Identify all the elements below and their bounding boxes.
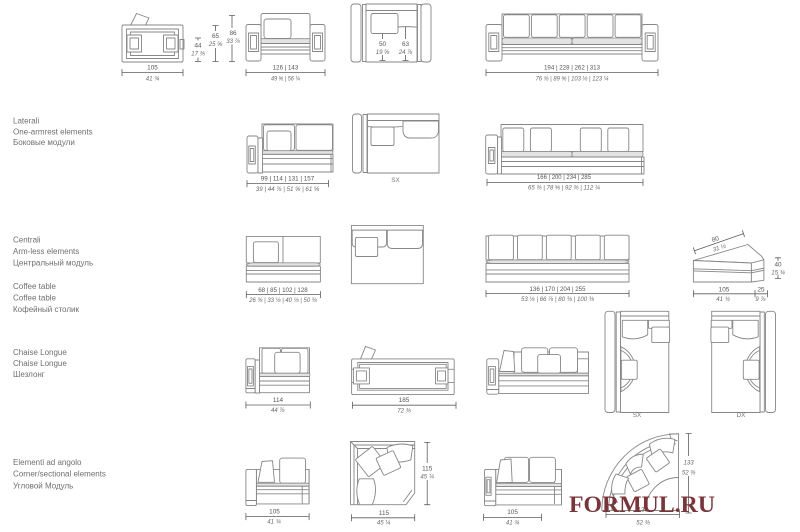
svg-text:114: 114 bbox=[273, 397, 284, 404]
svg-text:105: 105 bbox=[507, 509, 518, 516]
svg-text:Centrali: Centrali bbox=[13, 236, 41, 245]
svg-text:105: 105 bbox=[147, 65, 158, 72]
svg-text:Coffee table: Coffee table bbox=[13, 282, 57, 291]
svg-text:33 ⅞: 33 ⅞ bbox=[226, 38, 240, 45]
svg-text:76 ⅜ | 89 ⅝ | 103 ⅛ | 123 ¼: 76 ⅜ | 89 ⅝ | 103 ⅛ | 123 ¼ bbox=[536, 76, 609, 83]
svg-text:194 | 228 | 262 | 313: 194 | 228 | 262 | 313 bbox=[544, 65, 600, 72]
svg-text:25: 25 bbox=[757, 286, 765, 293]
svg-text:50: 50 bbox=[379, 41, 387, 48]
svg-text:63: 63 bbox=[402, 41, 410, 48]
svg-text:Laterali: Laterali bbox=[13, 117, 39, 126]
svg-text:115: 115 bbox=[379, 510, 390, 517]
svg-text:Elementi ad angolo: Elementi ad angolo bbox=[13, 458, 82, 467]
svg-text:Шезлонг: Шезлонг bbox=[13, 370, 45, 379]
svg-text:Corner/sectional elements: Corner/sectional elements bbox=[13, 470, 106, 479]
svg-text:41 ¾: 41 ¾ bbox=[146, 76, 160, 83]
svg-text:SX: SX bbox=[391, 177, 400, 184]
svg-text:52 ⅜: 52 ⅜ bbox=[636, 520, 650, 527]
svg-text:Кофейный столик: Кофейный столик bbox=[13, 305, 79, 314]
svg-text:Chaise Longue: Chaise Longue bbox=[13, 348, 67, 357]
svg-text:65: 65 bbox=[212, 33, 220, 40]
svg-text:Arm-less elements: Arm-less elements bbox=[13, 247, 79, 256]
svg-text:105: 105 bbox=[269, 508, 280, 515]
svg-text:41 ¾: 41 ¾ bbox=[267, 518, 281, 525]
svg-text:FORMUL.RU: FORMUL.RU bbox=[569, 492, 715, 517]
svg-text:105: 105 bbox=[719, 286, 730, 293]
svg-text:166 | 200 | 234 | 285: 166 | 200 | 234 | 285 bbox=[537, 174, 591, 181]
svg-text:45 ¼: 45 ¼ bbox=[377, 520, 391, 527]
svg-text:115: 115 bbox=[422, 466, 433, 473]
svg-text:Угловой Модуль: Угловой Модуль bbox=[13, 481, 73, 490]
svg-text:One-armrest elements: One-armrest elements bbox=[13, 127, 93, 136]
svg-text:Chaise Longue: Chaise Longue bbox=[13, 359, 67, 368]
svg-text:15 ¾: 15 ¾ bbox=[771, 269, 785, 276]
svg-text:53 ⅛ | 66 ⅞ | 80 ⅜ | 100 ⅜: 53 ⅛ | 66 ⅞ | 80 ⅜ | 100 ⅜ bbox=[521, 296, 595, 303]
svg-text:Coffee table: Coffee table bbox=[13, 294, 57, 303]
svg-text:45 ¼: 45 ¼ bbox=[420, 473, 434, 480]
svg-text:39 | 44 ⅞ | 51 ⅝ | 61 ⅝: 39 | 44 ⅞ | 51 ⅝ | 61 ⅝ bbox=[256, 186, 320, 193]
svg-text:72 ⅜: 72 ⅜ bbox=[397, 407, 411, 414]
svg-text:52 ⅜: 52 ⅜ bbox=[682, 470, 696, 477]
svg-text:86: 86 bbox=[229, 30, 237, 37]
svg-text:136 | 170 | 204 | 255: 136 | 170 | 204 | 255 bbox=[530, 286, 586, 293]
svg-text:68 | 85 | 102 | 128: 68 | 85 | 102 | 128 bbox=[258, 287, 308, 294]
svg-text:19 ⅝: 19 ⅝ bbox=[376, 49, 390, 56]
svg-text:65 ⅜ | 78 ⅝ | 92 ⅜ | 112 ¼: 65 ⅜ | 78 ⅝ | 92 ⅜ | 112 ¼ bbox=[528, 185, 600, 192]
svg-text:Боковые модули: Боковые модули bbox=[13, 138, 75, 147]
svg-text:24 ⅞: 24 ⅞ bbox=[398, 49, 413, 56]
svg-text:9 ⅞: 9 ⅞ bbox=[755, 296, 765, 303]
svg-text:133: 133 bbox=[684, 459, 695, 466]
svg-text:26 ⅜ | 33 ⅛ | 40 ⅛ | 50 ⅜: 26 ⅜ | 33 ⅛ | 40 ⅛ | 50 ⅜ bbox=[248, 297, 317, 304]
svg-text:41 ¾: 41 ¾ bbox=[716, 296, 730, 303]
svg-text:25 ⅝: 25 ⅝ bbox=[208, 41, 223, 48]
svg-text:185: 185 bbox=[399, 397, 410, 404]
svg-text:44 ⅞: 44 ⅞ bbox=[271, 407, 285, 414]
svg-text:Центральный модуль: Центральный модуль bbox=[13, 258, 93, 267]
svg-text:17 ⅜: 17 ⅜ bbox=[191, 51, 205, 58]
svg-text:99 | 114 | 131 | 157: 99 | 114 | 131 | 157 bbox=[261, 176, 315, 183]
svg-text:49 ⅝ | 56 ¼: 49 ⅝ | 56 ¼ bbox=[271, 76, 300, 83]
svg-text:40: 40 bbox=[774, 262, 782, 269]
svg-text:DX: DX bbox=[737, 412, 747, 419]
svg-text:126 | 143: 126 | 143 bbox=[273, 65, 299, 72]
svg-text:41 ¾: 41 ¾ bbox=[506, 519, 520, 526]
svg-text:44: 44 bbox=[194, 43, 202, 50]
svg-text:SX: SX bbox=[633, 412, 642, 419]
